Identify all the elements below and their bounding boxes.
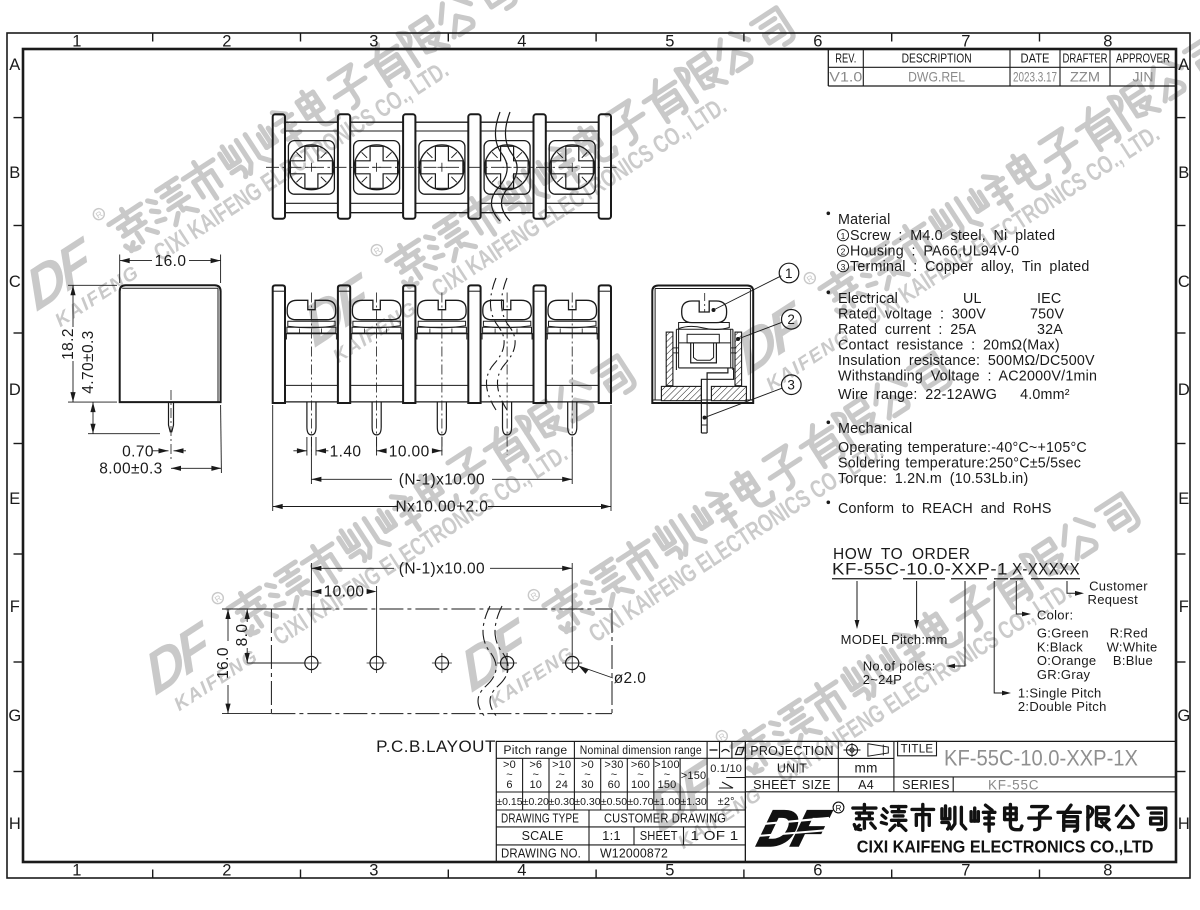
svg-text:KF-55C: KF-55C [988, 778, 1039, 793]
svg-text:A: A [1178, 56, 1189, 74]
svg-text:Wire range: 22-12AWG 4.0mm²: Wire range: 22-12AWG 4.0mm² [838, 387, 1070, 403]
svg-text:Screw : M4.0 steel, Ni plated: Screw : M4.0 steel, Ni plated [850, 228, 1055, 244]
svg-text:P.C.B.LAYOUT: P.C.B.LAYOUT [376, 737, 496, 756]
svg-text:GR:Gray: GR:Gray [1037, 667, 1091, 682]
svg-text:B: B [1178, 164, 1189, 182]
svg-text:2:Double Pitch: 2:Double Pitch [1018, 699, 1107, 714]
svg-text:3: 3 [369, 33, 379, 51]
svg-text:E: E [1178, 490, 1189, 508]
svg-text:DRAWING NO.: DRAWING NO. [501, 846, 581, 861]
svg-text:SHEET SIZE: SHEET SIZE [753, 778, 831, 792]
svg-text:JIN: JIN [1133, 69, 1154, 85]
svg-text:APPROVER: APPROVER [1116, 52, 1170, 66]
svg-text:3: 3 [841, 262, 846, 272]
svg-text:F: F [10, 598, 20, 616]
svg-text:1: 1 [785, 266, 793, 281]
svg-text:7: 7 [961, 862, 971, 880]
svg-text:B:Blue: B:Blue [1113, 653, 1153, 668]
svg-text:Pitch:mm: Pitch:mm [891, 632, 948, 647]
svg-text:R:Red: R:Red [1110, 626, 1148, 641]
svg-text:G: G [1177, 707, 1190, 725]
svg-text:2: 2 [787, 312, 795, 327]
svg-text:4.70±0.3: 4.70±0.3 [80, 330, 97, 393]
svg-text:>150: >150 [681, 770, 707, 782]
svg-text:16.0: 16.0 [215, 647, 232, 679]
svg-text:3: 3 [787, 377, 795, 392]
svg-text:C: C [1178, 273, 1190, 291]
svg-text:TITLE: TITLE [901, 744, 934, 756]
svg-text:Operating temperature:-40°C~+1: Operating temperature:-40°C~+105°C [838, 440, 1087, 456]
svg-text:SERIES: SERIES [902, 778, 950, 792]
svg-text:Terminal : Copper alloy, Tin p: Terminal : Copper alloy, Tin plated [850, 259, 1090, 275]
svg-text:R: R [836, 804, 842, 813]
svg-text:4: 4 [517, 33, 527, 51]
svg-text:1:1: 1:1 [602, 828, 621, 843]
svg-text:32A: 32A [1037, 322, 1063, 338]
svg-text:0.1/10: 0.1/10 [710, 763, 742, 775]
svg-text:G:Green: G:Green [1037, 626, 1089, 641]
svg-text:X-XXXXX: X-XXXXX [1012, 561, 1080, 579]
svg-text:Withstanding Voltage : AC2000V: Withstanding Voltage : AC2000V/1min [838, 369, 1097, 385]
svg-text:±0.20: ±0.20 [523, 796, 549, 808]
svg-text:A4: A4 [858, 778, 874, 792]
svg-text:V1.0: V1.0 [829, 69, 862, 85]
svg-text:G: G [8, 707, 21, 725]
svg-text:mm: mm [855, 761, 878, 776]
svg-text:Mechanical: Mechanical [838, 421, 912, 437]
svg-text:Electrical: Electrical [838, 291, 898, 307]
svg-text:F: F [1179, 598, 1189, 616]
svg-text:1: 1 [72, 862, 82, 880]
svg-text:SHEET: SHEET [640, 828, 678, 843]
svg-text:E: E [9, 490, 20, 508]
svg-text:6: 6 [506, 779, 512, 791]
svg-text:B: B [9, 164, 20, 182]
svg-text:UL: UL [963, 291, 982, 307]
svg-text:W12000872: W12000872 [600, 846, 668, 861]
svg-text:2: 2 [222, 33, 232, 51]
svg-text:D: D [9, 381, 21, 399]
svg-text:60: 60 [608, 779, 621, 791]
svg-text:±0.30: ±0.30 [549, 796, 575, 808]
svg-text:D: D [1178, 381, 1190, 399]
svg-text:CUSTOMER DRAWING: CUSTOMER DRAWING [604, 811, 726, 826]
svg-text:C: C [9, 273, 21, 291]
svg-text:Housing : PA66,UL94V-0: Housing : PA66,UL94V-0 [850, 244, 1019, 260]
svg-text:CIXI KAIFENG ELECTRONICS CO.,L: CIXI KAIFENG ELECTRONICS CO.,LTD [857, 837, 1154, 857]
svg-text:8.0: 8.0 [234, 624, 251, 647]
svg-text:Material: Material [838, 212, 890, 228]
svg-text:ø2.0: ø2.0 [614, 670, 647, 687]
svg-text:±1.00: ±1.00 [654, 796, 680, 808]
svg-text:5: 5 [665, 33, 675, 51]
svg-text:UNIT: UNIT [777, 762, 807, 776]
svg-text:18.2: 18.2 [60, 328, 77, 360]
svg-text:Nx10.00+2.0: Nx10.00+2.0 [396, 499, 489, 516]
svg-text:DATE: DATE [1021, 52, 1050, 66]
svg-text:750V: 750V [1030, 307, 1064, 323]
svg-text:1: 1 [72, 33, 82, 51]
svg-text:3: 3 [369, 862, 379, 880]
svg-text:1.40: 1.40 [330, 443, 362, 460]
svg-text:H: H [1178, 815, 1190, 833]
svg-text:REV.: REV. [835, 52, 856, 66]
svg-text:(N-1)x10.00: (N-1)x10.00 [399, 471, 485, 488]
svg-text:8.00±0.3: 8.00±0.3 [99, 461, 162, 478]
svg-text:Color:: Color: [1037, 608, 1073, 623]
svg-text:Soldering temperature:250°C±5/: Soldering temperature:250°C±5/5sec [838, 456, 1081, 472]
svg-text:100: 100 [631, 779, 650, 791]
svg-text:MODEL: MODEL [841, 632, 889, 647]
svg-text:±2°: ±2° [718, 796, 735, 808]
svg-text:Rated voltage : 300V: Rated voltage : 300V [838, 307, 986, 323]
svg-text:2~24P: 2~24P [863, 672, 902, 687]
svg-text:2: 2 [841, 247, 846, 257]
svg-text:150: 150 [658, 779, 677, 791]
svg-text:O:Orange: O:Orange [1037, 653, 1096, 668]
svg-text:DESCRIPTION: DESCRIPTION [902, 52, 972, 66]
svg-text:7: 7 [961, 33, 971, 51]
svg-text:10.00: 10.00 [389, 443, 430, 460]
svg-text:(N-1)x10.00: (N-1)x10.00 [399, 560, 485, 577]
svg-text:Nominal dimension range: Nominal dimension range [580, 745, 702, 757]
svg-text:±0.15: ±0.15 [496, 796, 522, 808]
svg-text:±0.70: ±0.70 [627, 796, 653, 808]
svg-text:±1.30: ±1.30 [680, 796, 706, 808]
svg-text:KF-55C-10.0-XXP-1X: KF-55C-10.0-XXP-1X [944, 746, 1138, 771]
svg-text:DRAWING TYPE: DRAWING TYPE [501, 811, 579, 826]
svg-text:H: H [9, 815, 21, 833]
svg-text:1: 1 [841, 231, 846, 241]
svg-text:DRAFTER: DRAFTER [1063, 52, 1108, 66]
svg-text:SCALE: SCALE [522, 828, 564, 843]
svg-text:5: 5 [665, 862, 675, 880]
svg-text:DWG.REL: DWG.REL [908, 69, 965, 85]
svg-text:8: 8 [1103, 862, 1113, 880]
svg-text:±0.50: ±0.50 [601, 796, 627, 808]
svg-text:Conform to REACH and RoHS: Conform to REACH and RoHS [838, 501, 1052, 517]
svg-text:10.00: 10.00 [324, 584, 365, 601]
svg-text:2: 2 [222, 862, 232, 880]
svg-text:24: 24 [555, 779, 568, 791]
svg-text:30: 30 [581, 779, 594, 791]
svg-text:A: A [9, 56, 20, 74]
svg-text:2023.3.17: 2023.3.17 [1013, 69, 1057, 85]
svg-text:0.70: 0.70 [122, 444, 154, 461]
svg-text:Pitch range: Pitch range [503, 745, 567, 757]
svg-text:IEC: IEC [1037, 291, 1061, 307]
svg-text:6: 6 [813, 862, 823, 880]
svg-text:6: 6 [813, 33, 823, 51]
svg-text:KF-55C-10.0-XXP-1: KF-55C-10.0-XXP-1 [832, 561, 1008, 579]
svg-text:±0.30: ±0.30 [574, 796, 600, 808]
svg-text:Rated current : 25A: Rated current : 25A [838, 322, 977, 338]
svg-text:PROJECTION: PROJECTION [750, 744, 834, 758]
svg-text:10: 10 [529, 779, 542, 791]
svg-text:16.0: 16.0 [155, 253, 187, 270]
svg-text:4: 4 [517, 862, 527, 880]
svg-text:Insulation resistance: 500MΩ/D: Insulation resistance: 500MΩ/DC500V [838, 353, 1095, 369]
svg-text:ZZM: ZZM [1070, 69, 1100, 85]
svg-text:8: 8 [1103, 33, 1113, 51]
svg-text:Contact resistance : 20mΩ(Max): Contact resistance : 20mΩ(Max) [838, 338, 1060, 354]
svg-text:Request: Request [1088, 592, 1139, 607]
svg-text:Torque: 1.2N.m (10.53Lb.in): Torque: 1.2N.m (10.53Lb.in) [838, 471, 1028, 487]
svg-text:1 OF 1: 1 OF 1 [691, 828, 739, 843]
